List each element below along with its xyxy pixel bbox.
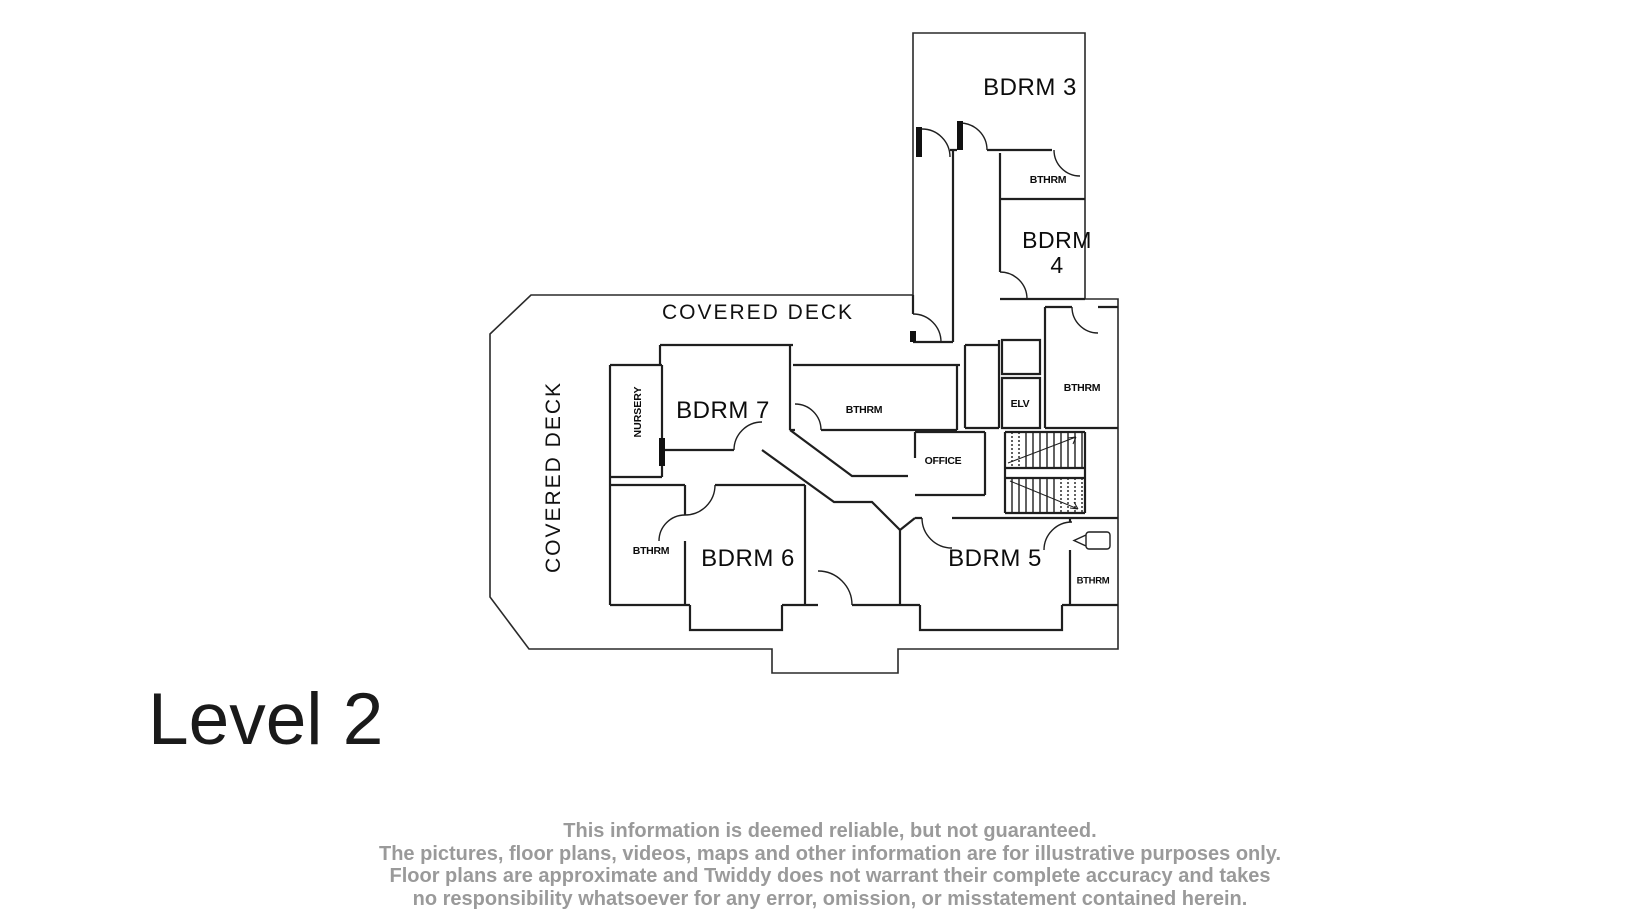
disclaimer-line-4: no responsibility whatsoever for any err… xyxy=(130,888,1530,911)
stairs-upper-flight xyxy=(1008,432,1082,468)
room-label-bthrm-left: BTHRM xyxy=(633,545,669,557)
disclaimer-line-1: This information is deemed reliable, but… xyxy=(130,820,1530,843)
room-label-bthrm-top: BTHRM xyxy=(1030,174,1066,186)
room-label-bdrm5: BDRM 5 xyxy=(948,545,1042,573)
toilet-icon xyxy=(1074,532,1110,549)
room-label-bthrm-upper-right: BTHRM xyxy=(1064,382,1100,394)
room-label-nursery: NURSERY xyxy=(632,387,644,438)
page: BDRM 3 BTHRM BDRM 4 ELV BTHRM COVERED DE… xyxy=(0,0,1632,916)
room-label-bdrm4: BDRM 4 xyxy=(1022,228,1092,278)
covered-deck-top-label: COVERED DECK xyxy=(662,301,854,325)
level-title: Level 2 xyxy=(148,678,383,761)
room-label-bdrm6: BDRM 6 xyxy=(701,545,795,573)
covered-deck-left-label: COVERED DECK xyxy=(542,381,566,573)
disclaimer-line-2: The pictures, floor plans, videos, maps … xyxy=(130,843,1530,866)
disclaimer-line-3: Floor plans are approximate and Twiddy d… xyxy=(130,865,1530,888)
room-label-elv: ELV xyxy=(1011,398,1030,410)
stairs-lower-flight xyxy=(1010,478,1082,513)
disclaimer: This information is deemed reliable, but… xyxy=(130,820,1530,910)
room-label-bthrm-lower-right: BTHRM xyxy=(1077,576,1110,587)
room-label-bthrm-center: BTHRM xyxy=(846,404,882,416)
floor-plan-drawing xyxy=(0,0,1632,916)
room-label-bdrm3: BDRM 3 xyxy=(983,74,1077,102)
room-label-bdrm7: BDRM 7 xyxy=(676,397,770,425)
room-label-office: OFFICE xyxy=(925,455,962,467)
